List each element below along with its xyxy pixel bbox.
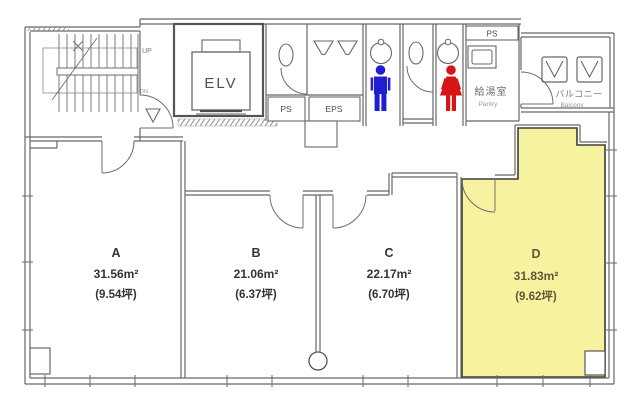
room-b-name: B bbox=[251, 246, 260, 260]
room-c-tsubo: (6.70坪) bbox=[368, 288, 410, 301]
room-a-name: A bbox=[111, 246, 120, 260]
room-d-area: 31.83m² bbox=[514, 269, 559, 283]
faucet-icon bbox=[445, 39, 451, 45]
room-b-tsubo: (6.37坪) bbox=[235, 288, 277, 301]
pillar-notch bbox=[585, 351, 605, 375]
stairs-up-label: UP bbox=[142, 48, 152, 55]
room-c-area: 22.17m² bbox=[367, 267, 412, 281]
wall-hatch bbox=[27, 28, 69, 32]
room-d-name: D bbox=[531, 247, 540, 261]
elevator-label: ELV bbox=[204, 75, 237, 92]
balcony-label-en: Balcony bbox=[560, 102, 584, 109]
elevator-sill-hatch bbox=[178, 119, 277, 126]
ps-pantry-label: PS bbox=[487, 30, 498, 39]
floor-plan-canvas: UP DN ELV bbox=[0, 0, 640, 411]
eps-label: EPS bbox=[325, 104, 342, 114]
room-a-area: 31.56m² bbox=[94, 267, 139, 281]
elevator: ELV bbox=[174, 24, 277, 126]
room-a-tsubo: (9.54坪) bbox=[95, 288, 137, 301]
room-d-tsubo: (9.62坪) bbox=[515, 290, 557, 303]
stairs-down-label: DN bbox=[140, 89, 148, 95]
floor-plan: UP DN ELV bbox=[0, 0, 640, 411]
room-c-name: C bbox=[384, 246, 393, 260]
room-b-area: 21.06m² bbox=[234, 267, 279, 281]
balcony-label-jp: バルコニー bbox=[555, 89, 602, 99]
pantry-label-en: Pantry bbox=[479, 101, 499, 108]
pillar-notch bbox=[30, 348, 50, 374]
column-icon bbox=[309, 352, 327, 370]
corridor-pillar bbox=[305, 121, 337, 147]
faucet-icon bbox=[378, 39, 384, 45]
ps-label: PS bbox=[280, 104, 292, 114]
pantry-label-jp: 給湯室 bbox=[475, 85, 508, 98]
